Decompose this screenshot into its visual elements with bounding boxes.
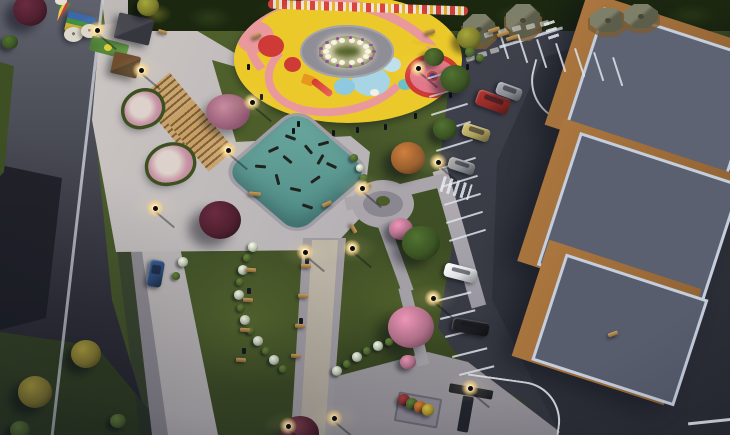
tree: [433, 118, 457, 140]
bush: [476, 54, 484, 61]
street-lamp: [332, 416, 337, 421]
bush: [236, 278, 244, 285]
rubber-surface-patch: [258, 35, 284, 57]
bush: [248, 242, 258, 251]
bollard: [247, 64, 250, 70]
flower-cluster: [349, 65, 353, 68]
bush: [172, 272, 180, 279]
bush: [385, 338, 393, 345]
trash-bin: [299, 318, 303, 324]
glowing-seat: [325, 54, 331, 59]
glowing-seat: [331, 58, 337, 63]
bush: [10, 421, 30, 435]
park-aerial-render: [0, 0, 730, 435]
park-bench: [236, 358, 246, 363]
car-windshield: [151, 264, 161, 274]
car-windshield: [451, 266, 470, 275]
bush: [243, 254, 251, 261]
rubber-surface-patch: [284, 57, 301, 72]
flower-cluster: [319, 54, 323, 57]
bollard: [449, 92, 452, 98]
street-lamp: [360, 186, 365, 191]
bollard: [297, 121, 300, 127]
bush: [237, 304, 245, 311]
street-lamp: [286, 424, 291, 429]
street-lamp: [303, 250, 308, 255]
street-lamp: [95, 28, 100, 33]
car-windshield: [468, 126, 484, 135]
park-bench: [298, 294, 308, 299]
flower-cluster: [336, 64, 340, 67]
car-windshield: [502, 85, 517, 94]
bush: [279, 365, 287, 372]
street-lamp: [468, 386, 473, 391]
bush: [422, 404, 434, 415]
park-bench: [295, 324, 305, 329]
bollard: [292, 128, 295, 134]
trash-bin: [247, 288, 251, 294]
street-lamp: [153, 206, 158, 211]
bush: [465, 47, 475, 56]
bush: [240, 315, 250, 324]
bush: [262, 347, 270, 354]
gazebo-roof-cap: [638, 14, 644, 19]
park-bench: [240, 328, 250, 333]
bollard: [384, 124, 387, 130]
tree: [402, 226, 440, 261]
bush: [18, 376, 52, 407]
bush: [350, 154, 358, 161]
flower-cluster: [325, 41, 329, 44]
bush: [71, 340, 101, 368]
park-bench: [291, 354, 301, 359]
rubber-surface-patch: [370, 89, 379, 96]
street-lamp: [139, 68, 144, 73]
bush: [363, 347, 371, 354]
bush: [356, 164, 364, 171]
rubber-surface-patch: [334, 78, 355, 95]
tree: [457, 27, 481, 49]
bush: [178, 257, 188, 266]
bush: [343, 360, 351, 367]
trash-bin: [242, 348, 246, 354]
flower-cluster: [325, 60, 329, 63]
gazebo-roof-cap: [520, 18, 526, 23]
flower-cluster: [319, 47, 323, 50]
bush: [269, 355, 279, 364]
street-lamp: [226, 148, 231, 153]
bush: [352, 352, 362, 361]
park-bench: [243, 298, 253, 303]
bush: [373, 341, 383, 350]
street-lamp: [436, 160, 441, 165]
street-lamp: [250, 100, 255, 105]
street-lamp: [431, 296, 436, 301]
car-windshield: [460, 321, 481, 329]
tree: [440, 65, 470, 93]
flower-cluster: [349, 36, 353, 39]
park-bench: [246, 268, 256, 273]
street-lamp: [350, 246, 355, 251]
bollard: [332, 130, 335, 136]
flower-cluster: [369, 57, 373, 60]
glowing-seat: [363, 54, 369, 59]
flower-cluster: [336, 37, 340, 40]
bush: [253, 336, 263, 345]
tree: [199, 201, 241, 240]
bollard: [356, 127, 359, 133]
bollard: [414, 113, 417, 119]
bush: [332, 366, 342, 375]
gazebo-roof-cap: [605, 18, 611, 23]
street-lamp: [416, 66, 421, 71]
